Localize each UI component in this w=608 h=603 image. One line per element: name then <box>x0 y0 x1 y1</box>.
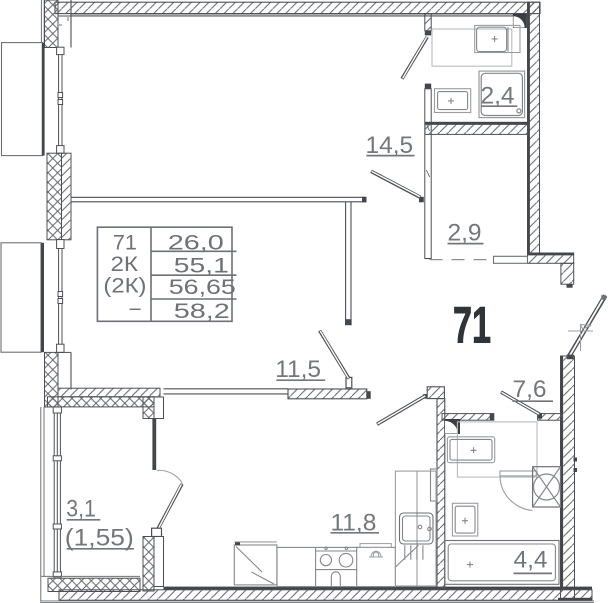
svg-text:4,4: 4,4 <box>514 546 548 573</box>
svg-text:58,2: 58,2 <box>174 299 230 323</box>
svg-text:(1,55): (1,55) <box>65 524 134 551</box>
svg-text:7,6: 7,6 <box>513 376 547 403</box>
svg-text:2,9: 2,9 <box>448 220 482 247</box>
svg-text:55,1: 55,1 <box>174 253 229 277</box>
svg-text:2К: 2К <box>111 252 139 276</box>
svg-text:3,1: 3,1 <box>66 496 96 523</box>
svg-text:11,5: 11,5 <box>275 356 321 383</box>
svg-text:56,65: 56,65 <box>169 275 236 299</box>
svg-text:26,0: 26,0 <box>168 231 224 255</box>
svg-text:2,4: 2,4 <box>481 82 515 109</box>
svg-text:–: – <box>130 296 141 320</box>
svg-text:71: 71 <box>453 297 491 354</box>
svg-text:(2К): (2К) <box>103 274 146 298</box>
